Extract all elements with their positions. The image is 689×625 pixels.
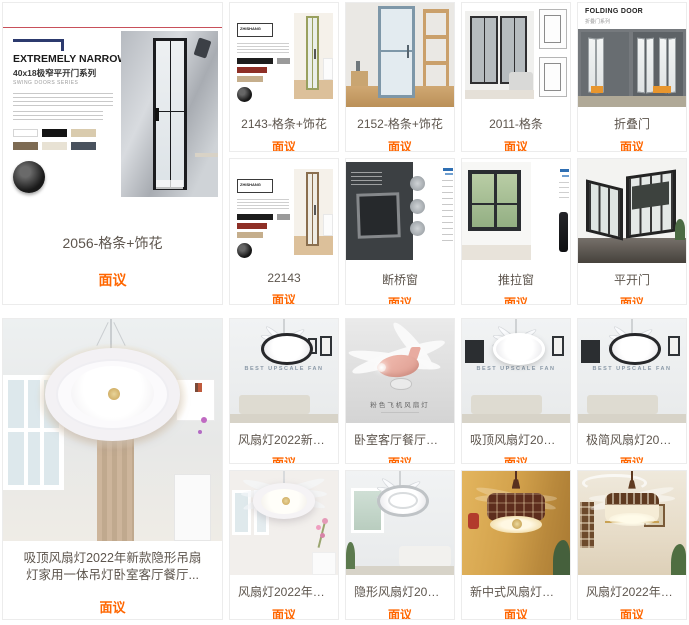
title-line1: 吸顶风扇灯2022年新款隐形吊扇 — [24, 551, 202, 565]
scene-photo — [578, 29, 686, 107]
product-price: 面议 — [346, 454, 454, 464]
room-photo — [294, 169, 333, 255]
door-shape — [306, 16, 319, 90]
spec-text-lines — [237, 43, 289, 53]
orange-label — [591, 86, 603, 93]
pendant-lamp-shape — [194, 38, 212, 59]
poster-paragraph — [13, 93, 113, 106]
cabinet-shape — [312, 552, 336, 575]
folding-door-leaf — [637, 37, 645, 92]
product-image — [346, 3, 454, 107]
blue-title-line — [562, 175, 569, 177]
folding-door-leaf — [588, 37, 596, 93]
product-image: BEST UPSCALE FAN — [462, 319, 570, 423]
product-title[interactable]: 卧室客厅餐厅吸顶风扇灯.. — [346, 431, 454, 448]
detail-photo-circle — [410, 176, 425, 191]
hardware-detail-photo — [237, 87, 252, 102]
swatch-black — [42, 129, 67, 137]
window-shape — [356, 193, 400, 239]
door-shape — [153, 38, 187, 191]
swatch-tan — [71, 129, 96, 137]
product-image — [230, 471, 338, 575]
sofa-shape — [587, 395, 658, 414]
room-photo — [462, 162, 531, 260]
doors-section: EXTREMELY NARROW 40x18极窄平开门系列 SWING DOOR… — [2, 2, 687, 305]
book-shape — [198, 383, 202, 392]
product-price: 面议 — [462, 606, 570, 620]
folding-door-leaf — [646, 37, 654, 92]
product-card-fan-chinese-2[interactable]: 风扇灯2022年新款吸顶吊... 面议 — [577, 470, 687, 620]
catalog-panel — [533, 159, 570, 263]
plant-shape — [346, 542, 355, 569]
catalog-text-lines — [442, 180, 453, 242]
product-card-2056[interactable]: EXTREMELY NARROW 40x18极窄平开门系列 SWING DOOR… — [2, 2, 223, 305]
color-swatch — [237, 67, 267, 73]
rug-shape — [578, 414, 686, 423]
ceiling-molding — [582, 474, 647, 492]
room-photo — [465, 11, 534, 98]
product-image: ZHISHANG — [230, 159, 338, 263]
watermark-text: BEST UPSCALE FAN — [230, 366, 338, 372]
swatch-white — [13, 129, 38, 137]
color-swatch — [277, 214, 290, 220]
swatch-brown — [13, 142, 38, 150]
product-price: 面议 — [346, 606, 454, 620]
swatch-cream — [42, 142, 67, 150]
folding-door-leaf — [668, 37, 676, 92]
product-image: EXTREMELY NARROW 40x18极窄平开门系列 SWING DOOR… — [3, 3, 222, 203]
product-image — [3, 319, 222, 541]
poster-corner-mark — [13, 39, 64, 51]
color-swatches — [13, 129, 96, 137]
vase-shape — [356, 61, 360, 71]
product-price: 面议 — [346, 294, 454, 305]
product-price: 面议 — [3, 597, 222, 616]
floor-shape — [462, 245, 531, 260]
rug-shape — [462, 414, 570, 423]
product-price: 面议 — [230, 454, 338, 464]
fan-lamp-disc — [377, 485, 428, 517]
poster-subtitle: 折叠门系列 — [585, 18, 610, 25]
poster-text-lines — [351, 172, 382, 185]
product-card-bigfan[interactable]: 吸顶风扇灯2022年新款隐形吊扇 灯家用一体吊灯卧室客厅餐厅... 面议 — [2, 318, 223, 620]
rug-shape — [346, 566, 454, 575]
product-price: 面议 — [230, 291, 338, 305]
door-shape — [306, 172, 319, 246]
product-image: BEST UPSCALE FAN — [230, 319, 338, 423]
product-image — [346, 159, 454, 263]
product-card-22143[interactable]: ZHISHANG 22143 面议 — [229, 158, 339, 305]
product-price: 面议 — [230, 606, 338, 620]
lamp-mount-rod — [631, 471, 633, 481]
fan-lamp-disc — [609, 333, 660, 365]
photo-caption-strip — [156, 180, 183, 189]
poster-subhead: 40x18极窄平开门系列 — [13, 67, 96, 79]
product-card-2143[interactable]: ZHISHANG 2143-格条+饰花 面议 — [229, 2, 339, 152]
blue-title-line — [445, 173, 452, 175]
product-card-fan-6[interactable]: 隐形风扇灯2022新款简约... 面议 — [345, 470, 455, 620]
airplane-light — [377, 363, 386, 372]
product-title[interactable]: 2152-格条+饰花 — [346, 115, 454, 132]
wall-frame — [552, 336, 564, 357]
folding-door-leaf — [659, 37, 667, 92]
product-title[interactable]: 22143 — [230, 271, 338, 285]
furniture-shape — [323, 214, 333, 236]
product-card-2011[interactable]: 2011-格条 面议 — [461, 2, 571, 152]
color-swatch — [237, 223, 267, 229]
fans-grid: BEST UPSCALE FAN 风扇灯2022新款约家用餐... 面议 — [229, 318, 687, 620]
product-image — [462, 3, 570, 107]
product-detail-photo — [559, 212, 568, 252]
product-card-folding-door[interactable]: FOLDING DOOR 折叠门系列 — [577, 2, 687, 152]
spec-text-lines — [237, 199, 289, 209]
product-image: BEST UPSCALE FAN — [578, 319, 686, 423]
fan-lights-section: 吸顶风扇灯2022年新款隐形吊扇 灯家用一体吊灯卧室客厅餐厅... 面议 BES… — [2, 318, 687, 620]
product-price: 面议 — [578, 294, 686, 305]
color-swatches — [13, 142, 96, 150]
product-price: 面议 — [462, 138, 570, 152]
door-mullion — [156, 111, 184, 112]
hardware-detail-photo — [237, 243, 252, 258]
sofa-shape — [399, 546, 451, 567]
door-shape — [378, 6, 415, 98]
product-title[interactable]: 吸顶风扇灯2022年新款隐... — [462, 431, 570, 448]
furniture-shape — [323, 58, 333, 80]
sofa-shape — [239, 395, 310, 414]
flower-decor — [201, 417, 207, 423]
fan-lamp-disc — [261, 333, 312, 365]
photo-panel — [581, 32, 629, 104]
product-image — [462, 159, 570, 263]
plant-shape — [671, 544, 686, 575]
product-title[interactable]: 风扇灯2022年新款吸顶吊... — [578, 583, 686, 600]
label-underline — [381, 412, 420, 413]
blue-title-line — [560, 169, 569, 172]
product-title[interactable]: 2056-格条+饰花 — [3, 233, 222, 253]
poster-header — [578, 3, 686, 29]
product-card-2152[interactable]: 2152-格条+饰花 面议 — [345, 2, 455, 152]
product-card-fan-3[interactable]: BEST UPSCALE FAN 吸顶风扇灯2022年新款隐... 面议 — [461, 318, 571, 464]
product-image — [578, 471, 686, 575]
blue-title-line — [443, 168, 453, 171]
watermark-text: BEST UPSCALE FAN — [578, 366, 686, 372]
vanity-counter-shape — [195, 153, 218, 157]
product-price: 面议 — [578, 454, 686, 464]
folding-door-leaf — [596, 37, 604, 93]
poster-paragraph — [13, 111, 103, 120]
product-title[interactable]: 推拉窗 — [462, 271, 570, 288]
door-diagram — [539, 57, 567, 97]
orange-label — [653, 86, 671, 93]
brand-logo: ZHISHANG — [237, 179, 273, 193]
product-image: ZHISHANG — [230, 3, 338, 107]
product-title[interactable]: 新中式风扇灯吊灯客厅灯... — [462, 583, 570, 600]
watermark-text: BEST UPSCALE FAN — [462, 366, 570, 372]
poster-series-label: SWING DOORS SERIES — [13, 80, 78, 86]
poster-headline: EXTREMELY NARROW — [13, 53, 127, 65]
product-grid-page: EXTREMELY NARROW 40x18极窄平开门系列 SWING DOOR… — [0, 0, 689, 622]
product-title[interactable]: 2143-格条+饰花 — [230, 115, 338, 132]
detail-photo-circle — [410, 199, 425, 214]
glass-partition — [586, 179, 623, 240]
doors-grid: ZHISHANG 2143-格条+饰花 面议 — [229, 2, 687, 305]
product-title[interactable]: 平开门 — [578, 271, 686, 288]
product-card-fan-chinese-1[interactable]: 新中式风扇灯吊灯客厅灯... 面议 — [461, 470, 571, 620]
product-title[interactable]: 风扇灯2022年新款餐厅卧... — [230, 583, 338, 600]
wall-frame — [668, 336, 680, 357]
fan-lamp-medallion — [282, 497, 290, 505]
floor-shape — [578, 238, 686, 263]
product-image — [462, 471, 570, 575]
product-title[interactable]: 2011-格条 — [462, 115, 570, 132]
red-lantern-shape — [468, 513, 479, 530]
product-card-fan-5[interactable]: 风扇灯2022年新款餐厅卧... 面议 — [229, 470, 339, 620]
tv-shape — [465, 340, 483, 363]
lamp-mount-rod — [515, 471, 517, 480]
book-shape — [195, 383, 198, 392]
door-diagram — [539, 9, 567, 49]
fan-lamp-disc — [493, 333, 544, 365]
fan-lamp-medallion — [512, 519, 522, 529]
product-price: 面议 — [578, 606, 686, 620]
color-swatch — [237, 76, 263, 82]
poster-title: FOLDING DOOR — [585, 8, 643, 15]
room-photo — [294, 13, 333, 99]
product-card-fan-4[interactable]: BEST UPSCALE FAN 极简风扇灯2022年新款简... 面议 — [577, 318, 687, 464]
product-price: 面议 — [3, 270, 222, 290]
bathroom-photo — [121, 31, 218, 197]
window-shape — [468, 170, 522, 231]
catalog-text-lines — [559, 182, 569, 201]
rug-shape — [230, 414, 338, 423]
title-line2: 灯家用一体吊灯卧室客厅餐厅... — [26, 568, 199, 582]
color-swatch — [277, 58, 290, 64]
hardware-detail-photo — [13, 161, 45, 193]
product-title[interactable]: 极简风扇灯2022年新款简... — [578, 431, 686, 448]
color-swatch — [237, 232, 263, 238]
plant-shape — [675, 219, 685, 240]
product-label-text: 粉色飞机风扇灯 — [346, 399, 454, 409]
product-card-fan-1[interactable]: BEST UPSCALE FAN 风扇灯2022新款约家用餐... 面议 — [229, 318, 339, 464]
fan-lamp-medallion — [108, 388, 120, 400]
flower-decor — [316, 525, 321, 530]
lamp-lattice-band — [605, 493, 659, 504]
wall-frame — [320, 336, 332, 357]
dark-poster-panel — [346, 162, 413, 260]
product-card-fan-airplane[interactable]: 粉色飞机风扇灯 卧室客厅餐厅吸顶风扇灯.. 面议 — [345, 318, 455, 464]
color-swatch — [237, 214, 273, 220]
product-title[interactable]: 折叠门 — [578, 115, 686, 132]
door-shape — [470, 16, 498, 84]
product-price: 面议 — [462, 454, 570, 464]
wood-shelf-shape — [423, 9, 449, 86]
product-card-sliding-window[interactable]: 推拉窗 面议 — [461, 158, 571, 305]
table-shape — [351, 71, 367, 87]
floor-shape — [578, 96, 686, 107]
product-card-swing-door[interactable]: 平开门 面议 — [577, 158, 687, 305]
product-image: 粉色飞机风扇灯 — [346, 319, 454, 423]
product-price: 面议 — [346, 138, 454, 152]
product-title[interactable]: 隐形风扇灯2022新款简约... — [346, 583, 454, 600]
cabinet-shape — [174, 474, 211, 541]
floor-shape — [465, 90, 534, 99]
product-price: 面议 — [462, 294, 570, 305]
lamp-glow — [609, 513, 654, 527]
tv-shape — [581, 340, 599, 363]
propeller-ring — [390, 378, 411, 389]
product-image: FOLDING DOOR 折叠门系列 — [578, 3, 686, 107]
product-price: 面议 — [578, 138, 686, 152]
color-swatch — [237, 58, 273, 64]
poster-divider-line — [3, 27, 222, 28]
sofa-shape — [471, 395, 542, 414]
product-price: 面议 — [230, 138, 338, 152]
photo-panel — [633, 32, 683, 104]
product-title[interactable]: 风扇灯2022新款约家用餐... — [230, 431, 338, 448]
brand-logo: ZHISHANG — [237, 23, 273, 37]
swatch-slate — [71, 142, 96, 150]
product-card-duanqiao-window[interactable]: 断桥窗 面议 — [345, 158, 455, 305]
product-image — [578, 159, 686, 263]
plant-shape — [553, 540, 570, 575]
product-title[interactable]: 吸顶风扇灯2022年新款隐形吊扇 灯家用一体吊灯卧室客厅餐厅... — [3, 550, 222, 584]
product-title[interactable]: 断桥窗 — [346, 271, 454, 288]
product-image — [346, 471, 454, 575]
